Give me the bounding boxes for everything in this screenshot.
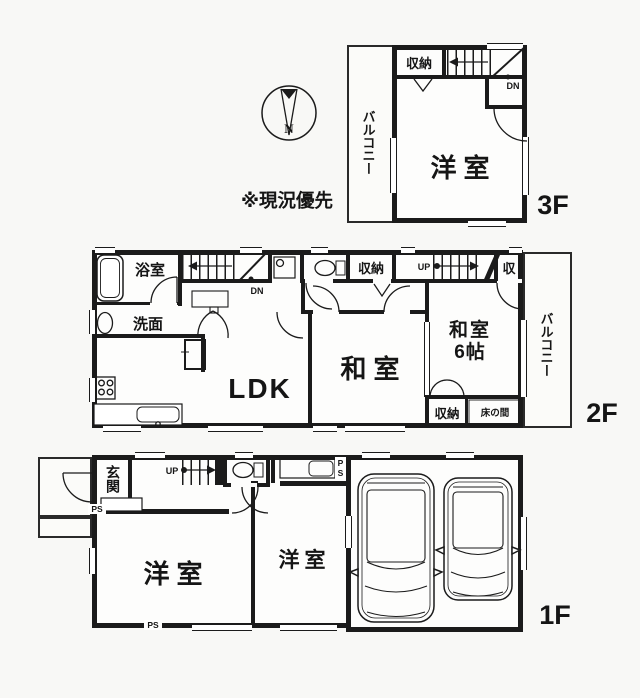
wall (442, 45, 446, 77)
window (522, 137, 529, 195)
compass-n-label: N (281, 121, 297, 137)
wall (201, 336, 205, 372)
window (468, 220, 506, 227)
window (509, 247, 522, 254)
window (95, 247, 115, 254)
stairs-3f (447, 48, 495, 76)
wall (308, 310, 312, 427)
room-label-storage-3f: 収納 (396, 53, 442, 71)
room-label-tokonoma: 床の間 (470, 406, 520, 418)
room-label-balcony-3f: バルコニー (357, 92, 379, 192)
window (89, 548, 96, 574)
window (487, 43, 523, 50)
room-label-yoshitsu-1f-large: 洋室 (132, 557, 214, 587)
room-label-washitsu6-2: 6帖 (432, 339, 508, 361)
floor-label-2f: 2F (579, 398, 625, 428)
wall (178, 250, 182, 306)
room-label-bath: 浴室 (128, 261, 172, 278)
window (313, 425, 337, 432)
room-label-yoshitsu-1f-small: 洋室 (271, 547, 333, 571)
compass-needle-tip (281, 89, 297, 99)
room-label-storage-small: 収 (496, 259, 522, 276)
sliding-door (424, 322, 430, 397)
ps-label-1: PS (88, 504, 106, 514)
stairs-up-label-1f: UP (161, 465, 183, 476)
wall (268, 250, 272, 281)
wall (251, 481, 255, 628)
room-label-yoshitsu-3f: 洋室 (400, 151, 520, 181)
door-gap (231, 483, 257, 487)
wall (485, 105, 527, 109)
wall (346, 250, 350, 281)
door-gap (229, 509, 253, 514)
window (240, 247, 262, 254)
window (192, 624, 252, 631)
wall (92, 334, 205, 338)
window (89, 310, 96, 334)
garage-outline (346, 455, 523, 632)
room-label-wash: 洗面 (126, 315, 170, 332)
door-gap (384, 310, 410, 314)
porch-step-1f (38, 517, 92, 538)
floor-plan-sheet: ※現況優先 N バルコニー 収納 DN 洋室 3F 浴室 洗面 DN 収納 UP… (0, 0, 640, 698)
window (208, 425, 263, 432)
wall (300, 250, 304, 281)
window (235, 452, 253, 459)
stairs-up-2f (433, 252, 483, 280)
floor-label-3f: 3F (530, 190, 576, 220)
window (446, 452, 474, 459)
room-label-ldk: LDK (221, 374, 299, 404)
room-label-genkan: 玄関 (102, 460, 124, 498)
window (390, 138, 397, 193)
door-gap (150, 302, 177, 305)
door-gap (497, 279, 522, 283)
note-text: ※現況優先 (237, 189, 337, 211)
window (311, 247, 328, 254)
room-label-storage-2f-top: 収納 (350, 259, 392, 275)
room-label-storage-2f-bottom: 収納 (427, 405, 467, 420)
door-gap (313, 310, 339, 314)
window (135, 452, 165, 459)
window (520, 320, 527, 397)
window (520, 517, 527, 570)
window (345, 516, 352, 548)
wall (485, 77, 489, 108)
door-gap (272, 279, 300, 283)
porch-1f (38, 457, 92, 517)
wall (128, 455, 132, 500)
stairs-up-1f (182, 457, 218, 485)
door-gap (373, 279, 391, 283)
window (103, 425, 141, 432)
window (280, 624, 337, 631)
wall (271, 455, 275, 483)
stairs-down-2f (182, 252, 238, 280)
wall (392, 250, 396, 281)
room-label-washitsu: 和室 (329, 352, 411, 382)
stairs-dn-label-3f: DN (500, 80, 526, 91)
window (362, 452, 390, 459)
ps-label-2: PS (144, 620, 162, 630)
stairs-dn-label-2f: DN (244, 285, 270, 296)
window (345, 425, 405, 432)
wall (223, 455, 227, 485)
room-label-balcony-2f: バルコニー (535, 294, 557, 394)
door-gap (305, 279, 333, 283)
floor-label-1f: 1F (532, 600, 578, 630)
wall (425, 395, 523, 399)
ps-label-3: PS (335, 457, 346, 479)
wall (266, 455, 270, 485)
window (401, 247, 415, 254)
window (89, 378, 96, 402)
stairs-up-label-2f: UP (413, 261, 435, 272)
wall (301, 282, 305, 313)
